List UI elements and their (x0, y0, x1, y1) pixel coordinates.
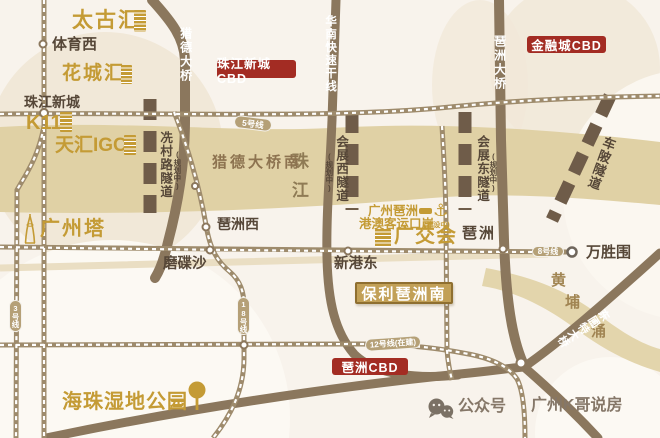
ferry-terminal-icon (419, 208, 432, 214)
huangpu-creek-char: 埔 (565, 295, 580, 311)
building-icon (375, 229, 391, 247)
landmark-huacheng-hui: 花城汇 (62, 64, 125, 84)
metro-line18-badge: 18号线 (237, 297, 250, 335)
pazhou-area-map: 太古汇 花城汇 K11 天汇IGC 广州塔 广州琶洲 港澳客运口岸 (建设中) … (0, 0, 660, 438)
landmark-canton-fair: 广交会 (394, 226, 457, 247)
station-pazhou: 琶洲 (462, 226, 496, 242)
station-tiyuxi: 体育西 (52, 37, 97, 53)
station-dot (500, 246, 507, 253)
terminus-dot (568, 248, 577, 257)
park-tree-icon (170, 381, 208, 412)
exhibition-west-tunnel-label: 会展西隧道 (334, 135, 347, 203)
liede-bridge-label: 猎德大桥 (179, 27, 192, 83)
station-dot (192, 183, 198, 189)
bench-icon (171, 399, 184, 402)
footer-account-name: 广州K哥说房 (531, 398, 623, 415)
station-zhujiang-new-town: 珠江新城 (24, 95, 80, 110)
station-modiesha: 磨碟沙 (163, 257, 207, 272)
planned-note: (规划中) (325, 152, 333, 193)
planned-note: (规划中) (489, 152, 497, 193)
building-icon (124, 135, 136, 155)
canton-tower-icon (22, 214, 38, 245)
station-wanshengwei: 万胜围 (586, 245, 631, 261)
building-icon (121, 65, 132, 84)
planned-note: (规划中) (173, 150, 181, 191)
station-dot (203, 224, 210, 231)
huanan-expressway-label: 华南快速干线 (324, 15, 336, 93)
wechat-icon (427, 398, 455, 420)
building-icon (60, 112, 72, 132)
zhujiang-new-town-cbd-badge: 珠江新城CBD (217, 60, 296, 78)
landmark-k11: K11 (26, 113, 62, 134)
property-badge-poly-pazhou-south: 保利琶洲南 (355, 282, 453, 304)
station-dot (345, 248, 352, 255)
metro-line8-badge: 8号线 (532, 246, 564, 257)
huangpu-creek-char: 黄 (551, 273, 566, 289)
station-dot (241, 342, 248, 349)
footer-wechat-label: 公众号 (458, 399, 506, 416)
road-junction-dot (517, 359, 526, 368)
station-pazhou-west: 琶洲西 (217, 217, 259, 232)
building-icon (134, 10, 146, 32)
station-dot (40, 41, 47, 48)
landmark-taikoo-hui: 太古汇 (72, 10, 141, 32)
landmark-tianhui-igc: 天汇IGC (55, 136, 127, 156)
station-dot (207, 247, 214, 254)
liede-bridge-south-label: 猎德大桥南 (212, 155, 302, 171)
landmark-canton-tower: 广州塔 (40, 219, 106, 240)
financial-city-cbd-badge: 金融城CBD (527, 36, 606, 53)
pazhou-cbd-badge: 琶洲CBD (332, 358, 408, 375)
station-xingangdong: 新港东 (334, 257, 378, 272)
exhibition-east-tunnel-label: 会展东隧道 (475, 135, 488, 203)
anchor-icon: ⚓ (433, 202, 448, 220)
xiancun-tunnel-label: 冼村路隧道 (158, 131, 171, 199)
pazhou-bridge-label: 琶洲大桥 (493, 35, 506, 91)
metro-line3-badge: 3号线 (9, 300, 22, 332)
